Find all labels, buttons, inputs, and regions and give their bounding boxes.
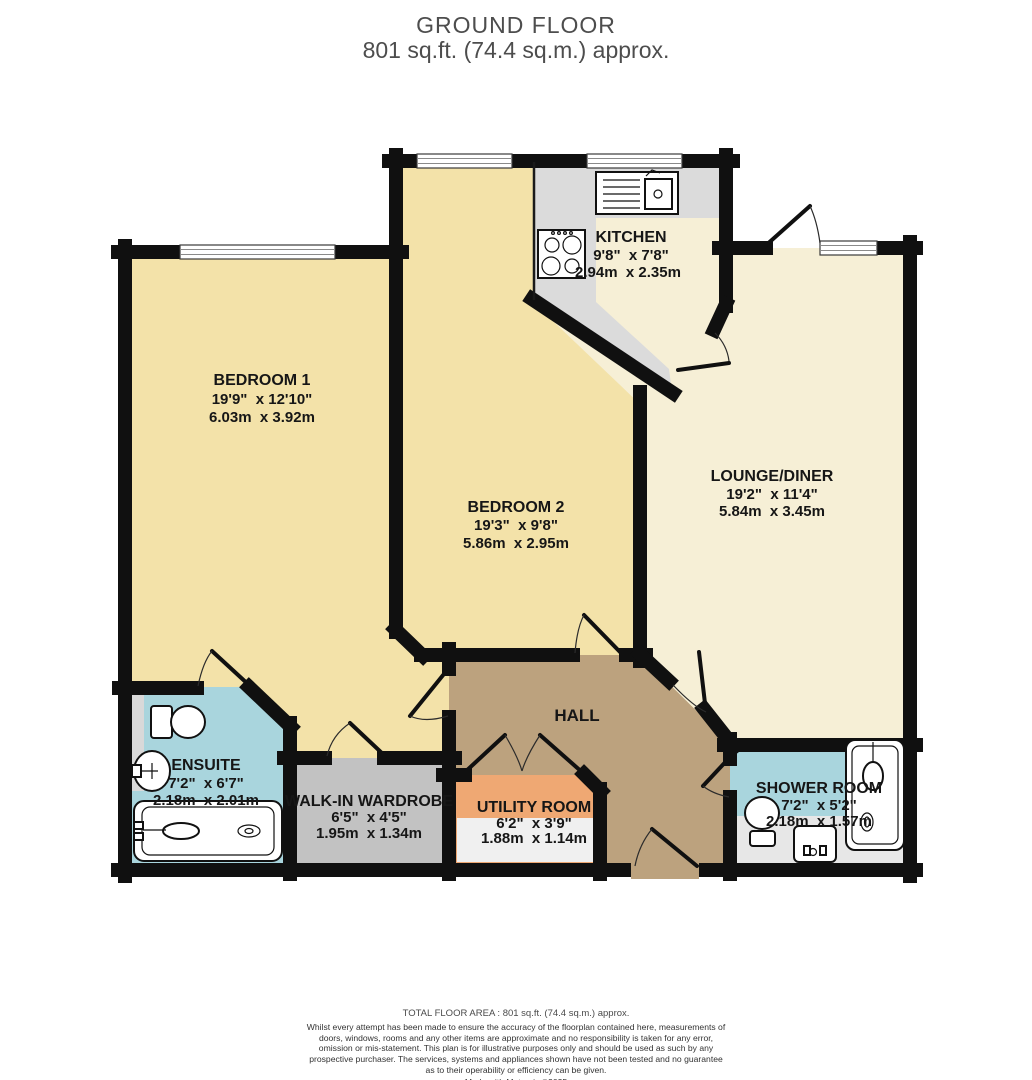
bedroom1-label: BEDROOM 1 — [214, 372, 311, 389]
wardrobe-imperial: 6'5" x 4'5" — [331, 809, 407, 826]
shower-metric: 2.18m x 1.57m — [766, 813, 872, 830]
disclaimer-text: Whilst every attempt has been made to en… — [306, 1022, 726, 1076]
floorplan-page: GROUND FLOOR 801 sq.ft. (74.4 sq.m.) app… — [0, 0, 1032, 1080]
lounge-metric: 5.84m x 3.45m — [719, 503, 825, 520]
kitchen-label: KITCHEN — [595, 229, 666, 246]
floorplan-drawing: BEDROOM 1 19'9" x 12'10" 6.03m x 3.92m B… — [0, 0, 1032, 1080]
bedroom1-imperial: 19'9" x 12'10" — [212, 391, 313, 408]
kitchen-window — [587, 154, 682, 168]
lounge-imperial: 19'2" x 11'4" — [726, 486, 817, 503]
bathtub-icon — [134, 801, 282, 861]
bedroom2-imperial: 19'3" x 9'8" — [474, 517, 558, 534]
kitchen-metric: 2.94m x 2.35m — [575, 264, 681, 281]
bedroom1-metric: 6.03m x 3.92m — [209, 409, 315, 426]
entrance-threshold — [631, 861, 699, 879]
shower-basin-icon — [794, 826, 836, 862]
wardrobe-metric: 1.95m x 1.34m — [316, 825, 422, 842]
ensuite-label: ENSUITE — [171, 757, 241, 774]
ensuite-imperial: 7'2" x 6'7" — [168, 775, 244, 792]
shower-label: SHOWER ROOM — [756, 780, 882, 797]
bedroom2-window — [417, 154, 512, 168]
lounge-window — [820, 241, 877, 255]
wardrobe-label: WALK-IN WARDROBE — [285, 793, 453, 810]
bedroom1-window — [180, 245, 335, 259]
lounge-label: LOUNGE/DINER — [711, 468, 834, 485]
bedroom2-metric: 5.86m x 2.95m — [463, 535, 569, 552]
utility-label: UTILITY ROOM — [477, 799, 591, 816]
shower-imperial: 7'2" x 5'2" — [781, 797, 857, 814]
total-floor-area: TOTAL FLOOR AREA : 801 sq.ft. (74.4 sq.m… — [0, 1008, 1032, 1019]
plan-footer: TOTAL FLOOR AREA : 801 sq.ft. (74.4 sq.m… — [0, 1008, 1032, 1080]
ensuite-toilet-icon — [151, 706, 205, 738]
kitchen-sink-icon — [596, 170, 678, 214]
utility-metric: 1.88m x 1.14m — [481, 830, 587, 847]
balcony-door — [764, 206, 820, 247]
hall-label: HALL — [554, 706, 599, 725]
kitchen-imperial: 9'8" x 7'8" — [593, 247, 669, 264]
ensuite-metric: 2.18m x 2.01m — [153, 792, 259, 809]
bedroom2-label: BEDROOM 2 — [468, 499, 565, 516]
